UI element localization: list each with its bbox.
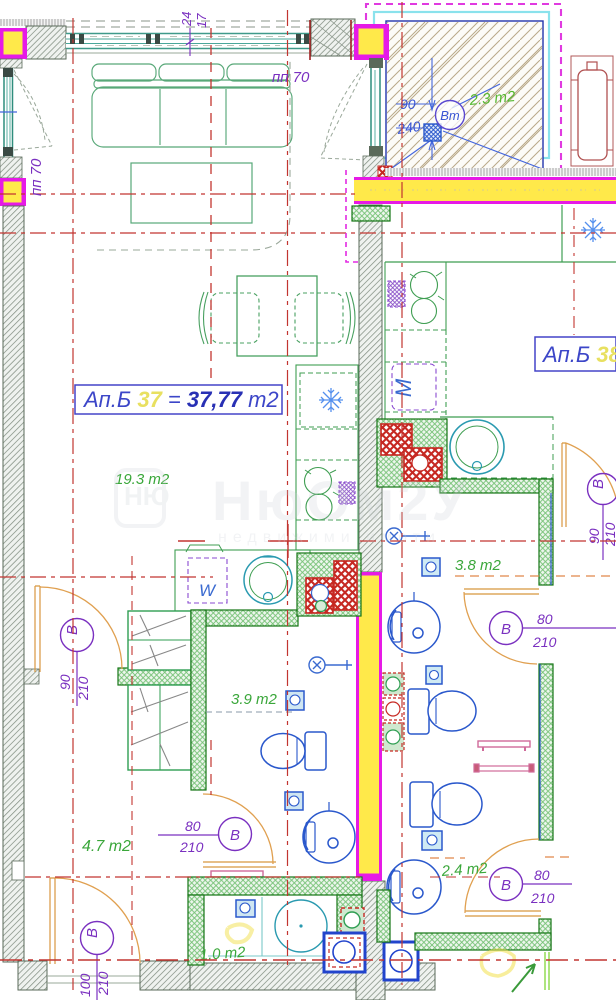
svg-text:B: B (84, 928, 101, 938)
svg-text:B: B (230, 827, 240, 844)
svg-text:210: 210 (602, 522, 616, 547)
svg-text:210: 210 (95, 971, 111, 996)
svg-text:1.0 m2: 1.0 m2 (199, 944, 247, 964)
svg-text:Ап.Б 37 = 37,77 m2: Ап.Б 37 = 37,77 m2 (82, 387, 279, 412)
svg-text:210: 210 (75, 676, 91, 701)
svg-text:пп 70: пп 70 (272, 69, 310, 86)
svg-text:210: 210 (530, 890, 555, 906)
svg-text:100: 100 (77, 973, 93, 997)
svg-text:3.9 m2: 3.9 m2 (231, 691, 278, 708)
svg-text:НЮ: НЮ (124, 481, 170, 511)
svg-text:90: 90 (57, 674, 73, 690)
svg-text:80: 80 (537, 611, 553, 627)
svg-text:B: B (501, 877, 511, 894)
svg-text:Вт: Вт (440, 108, 460, 123)
svg-text:80: 80 (534, 867, 550, 883)
svg-text:M: M (391, 378, 416, 397)
svg-text:недвижими имоти: недвижими имоти (218, 529, 441, 546)
svg-text:3.8 m2: 3.8 m2 (455, 557, 502, 574)
svg-text:B: B (590, 479, 607, 489)
svg-text:17: 17 (194, 13, 209, 28)
svg-text:210: 210 (532, 634, 557, 650)
svg-text:пп 70: пп 70 (28, 158, 45, 196)
svg-text:240: 240 (395, 118, 422, 137)
svg-text:НюОм2У: НюОм2У (212, 469, 469, 532)
svg-text:210: 210 (179, 839, 204, 855)
svg-text:80: 80 (185, 818, 201, 834)
svg-text:B: B (501, 621, 511, 638)
svg-text:90: 90 (586, 528, 602, 544)
svg-text:24: 24 (179, 12, 194, 27)
svg-text:4.7 m2: 4.7 m2 (82, 838, 131, 855)
svg-text:Ап.Б 38: Ап.Б 38 (541, 342, 616, 367)
svg-text:W: W (199, 581, 217, 600)
